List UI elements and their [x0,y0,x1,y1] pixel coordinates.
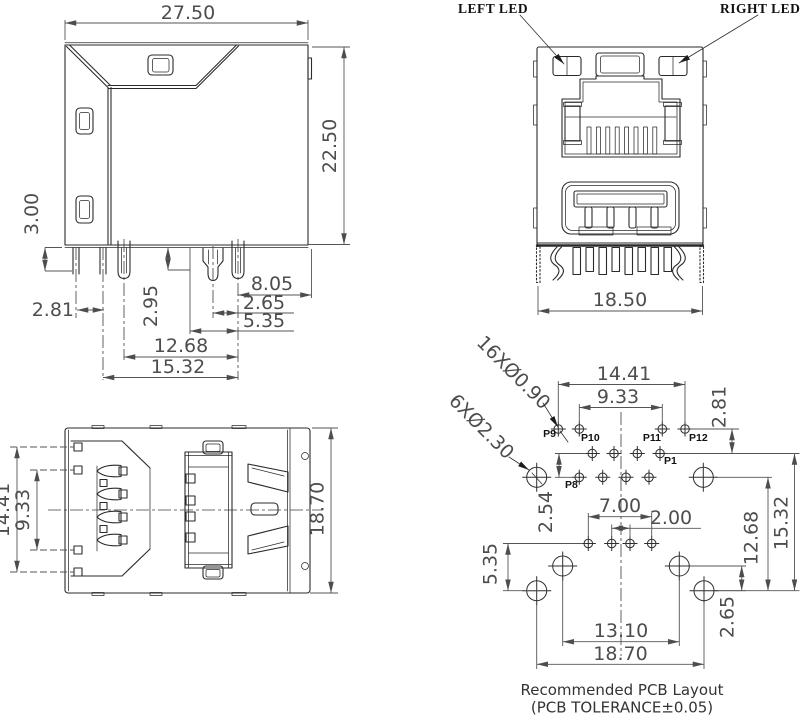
dim-ext-265p [690,566,746,591]
callout-small-leader-tail [560,431,568,442]
dim-side-height: 22.50 [319,119,341,173]
bottom-spring-lower-inner [252,542,284,550]
dim-side-leg-pitch: 2.81 [32,299,74,321]
callout-small-holes: 16XØ0.90 [472,332,554,414]
side-panel-seam [108,88,111,246]
connector-technical-drawing: 27.50 22.50 3.00 2.95 2.81 8.05 2.65 5.3… [0,0,800,716]
left-led-leader [520,15,564,64]
dim-pcb-1870: 18.70 [593,643,647,665]
right-led-leader [679,15,758,63]
side-latch-window-low-inner [80,201,90,219]
side-latch-window-top-inner [153,59,170,73]
dim-side-width: 27.50 [161,2,215,24]
drawing-sheet: 27.50 22.50 3.00 2.95 2.81 8.05 2.65 5.3… [0,0,800,716]
usb-tongue [574,191,667,207]
usb-contacts [585,207,658,228]
rj45-latch-rail-left [565,106,580,141]
side-rear-tab [308,58,312,79]
side-body-outline [65,45,308,245]
dim-pcb-933: 9.33 [597,386,639,408]
rj45-key-slot [596,53,644,76]
usb-tongue-inner [577,194,664,204]
front-hook-right [673,247,686,280]
left-led-label: LEFT LED [458,1,528,16]
bottom-usb-tab-top-inner [206,444,220,452]
front-shield-pins [573,248,672,275]
front-shield-tab-left [537,247,541,283]
pin-label-p12: P12 [689,432,708,444]
dim-pcb-265: 2.65 [717,596,739,638]
dim-pcb-1310: 13.10 [594,620,648,642]
dim-pcb-1268: 12.68 [741,511,763,565]
front-hook-left [551,247,564,280]
dim-side-1532: 15.32 [151,356,205,378]
pcb-tolerance-note: (PCB TOLERANCE±0.05) [531,699,713,716]
pcb-layout-title: Recommended PCB Layout [521,681,724,699]
pcb-layout-view: P9 P10 P11 P12 P1 P8 16XØ0.90 6XØ2.30 14… [444,332,799,716]
dim-side-standoff: 3.00 [21,193,43,235]
front-shield-tab-right [700,247,704,283]
dim-side-1268: 12.68 [154,335,208,357]
dim-pcb-1441: 14.41 [597,363,651,385]
callout-large-holes: 6XØ2.30 [444,390,518,464]
bottom-view: 14.41 9.33 18.70 [0,426,338,596]
dim-bottom-1870: 18.70 [307,482,329,536]
callout-large-leader [509,457,529,470]
usb-aperture-inner [566,186,676,231]
bottom-right-dimple-1 [302,453,309,460]
side-shelf [108,86,196,89]
dim-pcb-281: 2.81 [709,386,731,428]
side-latch-window-low [76,196,93,223]
rj45-key-slot-inner [601,56,640,73]
bottom-comb-chamfers [71,441,150,576]
pin-label-p11: P11 [643,432,661,444]
dim-ext-300 [45,248,72,272]
usb-aperture-outer [562,182,679,234]
rj45-bottom-fingers [97,465,127,546]
bottom-left-pads [74,443,82,576]
dim-pcb-1532: 15.32 [771,496,793,550]
dim-front-width: 18.50 [593,289,647,311]
side-latch-window-mid [76,108,93,134]
dim-bottom-933: 9.33 [12,489,34,531]
dim-ext-535p [503,544,583,591]
bottom-center-tab [251,503,278,515]
side-bevel-right [196,46,239,89]
bottom-usb-tab-bottom-inner [206,570,220,578]
bottom-right-wall [288,428,291,593]
side-latch-window-mid-inner [80,113,90,130]
front-view: 18.50 LEFT LED RIGHT LED [458,1,800,315]
bottom-spring-upper-inner [252,468,284,476]
right-led-label: RIGHT LED [720,1,800,16]
pin-label-p1: P1 [664,455,677,467]
pin-label-p9: P9 [543,428,556,440]
side-view: 27.50 22.50 3.00 2.95 2.81 8.05 2.65 5.3… [21,2,350,380]
dim-pcb-700: 7.00 [599,495,641,517]
dim-pcb-254: 2.54 [535,491,557,533]
dim-side-pin-length: 2.95 [140,285,162,327]
dim-pcb-200: 2.00 [650,507,692,529]
rj45-contacts [587,127,657,154]
callout-small-leader [543,403,558,427]
bottom-right-dimple-2 [302,563,309,570]
rj45-latch-rail-right [665,106,680,141]
bottom-usb-contacts [186,474,195,542]
pin-label-p8: P8 [565,479,578,491]
dim-side-535: 5.35 [243,310,285,332]
dim-pcb-535: 5.35 [480,543,502,585]
pin-label-p10: P10 [581,432,600,444]
side-bevel-left [67,45,111,88]
